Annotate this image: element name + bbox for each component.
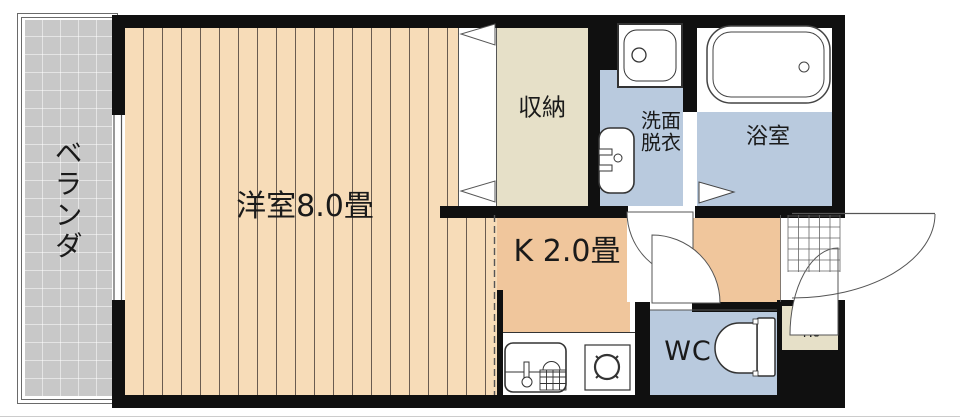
veranda-label: ベランダ <box>51 138 82 262</box>
kitchen-label: K 2.0畳 <box>514 235 621 269</box>
wall-top <box>112 15 845 28</box>
bathroom-door-gap <box>683 112 697 207</box>
entrance-hall-floor <box>781 213 845 302</box>
kitchen-floor-lower <box>497 302 630 332</box>
washroom-label-line2: 脱衣 <box>641 131 681 155</box>
wall-left-lower <box>112 300 125 408</box>
bathroom-label: 浴室 <box>746 126 790 151</box>
closet-label: 収納 <box>518 95 566 122</box>
veranda-window <box>112 115 125 300</box>
wall-mid-right <box>695 206 845 218</box>
kitchen-counter-area <box>497 332 635 395</box>
washroom-label-line1: 洗面 <box>641 109 681 133</box>
wall-bottom <box>112 395 845 408</box>
washroom-door-gap <box>628 206 695 218</box>
wall-right-upper <box>832 15 845 213</box>
main-room-label: 洋室8.0畳 <box>236 190 374 224</box>
wall-mid-left <box>440 206 628 218</box>
shoe-box-label: 靴 <box>800 317 820 339</box>
bathroom-tub-area <box>697 28 832 112</box>
closet-door-strip <box>458 28 497 206</box>
washroom-label: 洗面 脱衣 <box>641 110 681 155</box>
floor-plan: ベランダ 洋室8.0畳 収納 洗面 脱衣 浴室 K 2.0畳 WC 靴 <box>0 0 960 420</box>
wall-left-upper <box>112 15 125 115</box>
wall-counter-left <box>497 290 503 395</box>
wall-wc-top <box>692 302 780 312</box>
page-bottom-line <box>0 416 960 417</box>
wall-bathroom-left <box>683 15 697 112</box>
wall-washer-corner <box>600 15 618 70</box>
wall-closet-right <box>588 15 600 206</box>
wall-wc-left <box>635 302 650 395</box>
wc-label: WC <box>664 337 712 367</box>
hallway-strip <box>627 218 693 302</box>
